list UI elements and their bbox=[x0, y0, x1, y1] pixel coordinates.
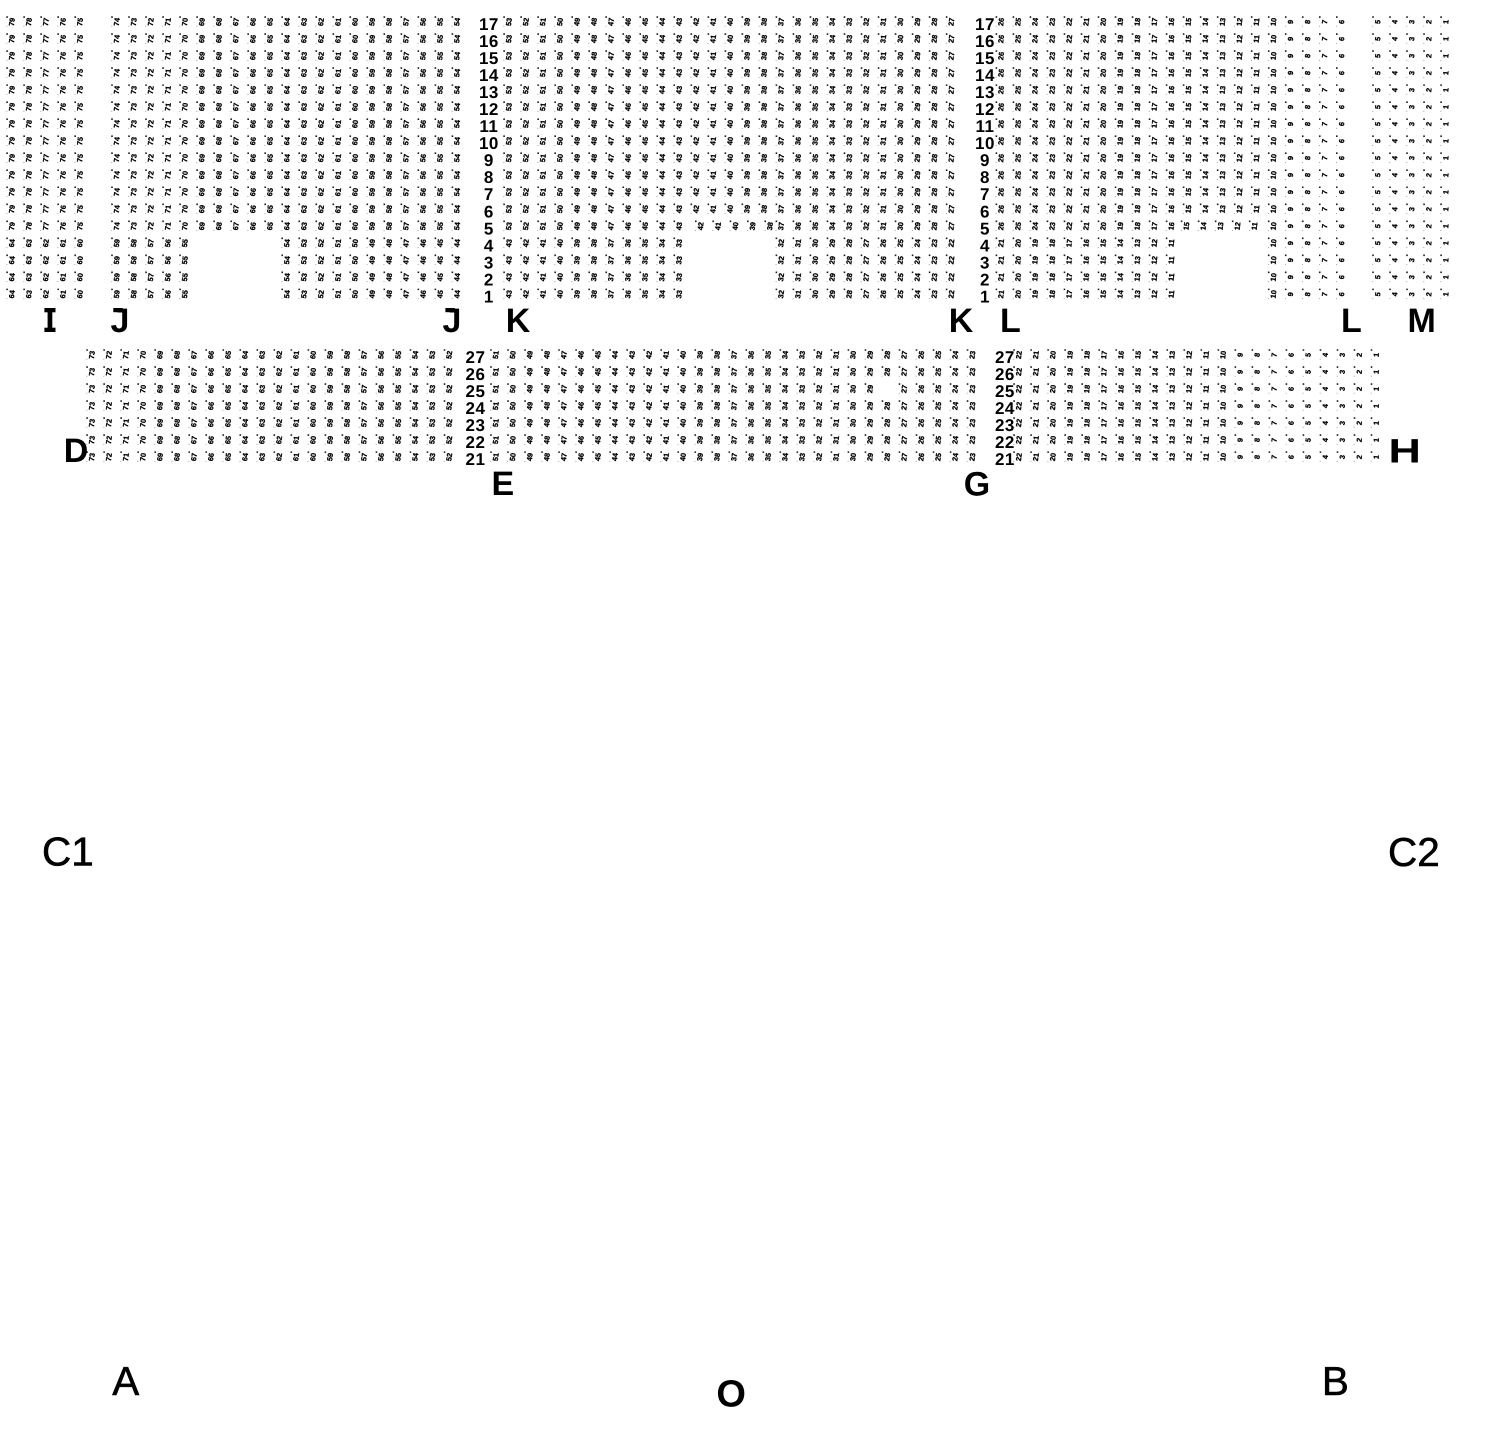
svg-text:C1: C1 bbox=[42, 829, 94, 875]
svg-text:21: 21 bbox=[995, 450, 1015, 469]
svg-text:A: A bbox=[112, 1358, 139, 1404]
svg-text:J: J bbox=[110, 302, 129, 340]
svg-text:E: E bbox=[492, 465, 515, 503]
svg-text:21: 21 bbox=[466, 450, 486, 469]
svg-text:C2: C2 bbox=[1388, 829, 1440, 875]
svg-text:M: M bbox=[1408, 302, 1436, 340]
svg-text:O: O bbox=[716, 1373, 746, 1415]
svg-text:K: K bbox=[506, 302, 531, 340]
svg-text:1: 1 bbox=[484, 287, 494, 306]
svg-text:L: L bbox=[1000, 302, 1021, 340]
svg-text:J: J bbox=[443, 302, 462, 340]
svg-text:1: 1 bbox=[980, 287, 990, 306]
svg-text:B: B bbox=[1322, 1358, 1349, 1404]
svg-text:K: K bbox=[949, 302, 974, 340]
svg-text:L: L bbox=[1341, 302, 1362, 340]
svg-text:H: H bbox=[1388, 433, 1420, 471]
svg-text:D: D bbox=[64, 432, 89, 470]
svg-text:G: G bbox=[964, 465, 990, 503]
